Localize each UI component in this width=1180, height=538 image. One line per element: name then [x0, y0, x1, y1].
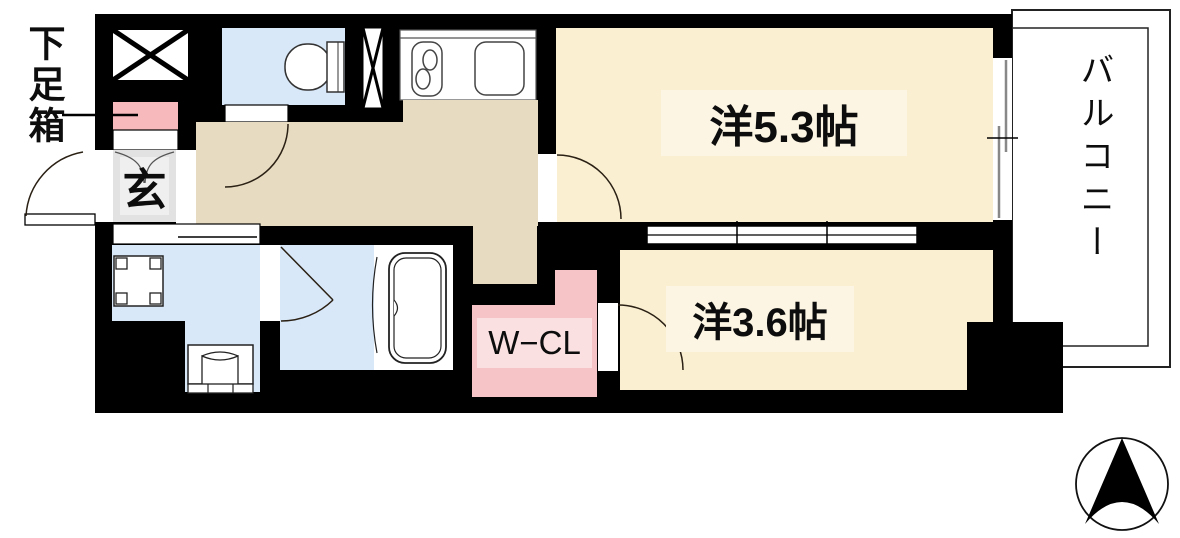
shoe-box-label: 下足箱 [16, 24, 70, 147]
stove-burner-icon [412, 42, 442, 96]
north-compass-icon [1076, 438, 1168, 530]
shoe-box-cabinet [113, 130, 178, 150]
toilet-icon [285, 42, 344, 92]
entrance-opening [176, 150, 196, 228]
floorplan-canvas: 下足箱 玄 洋5.3帖 洋3.6帖 W−CL バルコニー [0, 0, 1180, 538]
kitchen-sink-icon [475, 42, 524, 95]
front-door-gap [95, 150, 113, 222]
room-5-3-door-gap [538, 154, 557, 222]
washbasin-icon [188, 345, 253, 393]
shaft-x-icon [363, 28, 383, 108]
wcl-door-gap [598, 303, 618, 371]
shaft-x-box-icon [113, 30, 188, 80]
front-door-leaf [25, 214, 95, 225]
room-5-3-label: 洋5.3帖 [661, 90, 907, 156]
bathroom-door-gap [260, 245, 280, 321]
room-3-6-label: 洋3.6帖 [666, 286, 854, 352]
toilet-door-leaf [225, 105, 288, 122]
balcony-label: バルコニー [1070, 52, 1119, 267]
walk-in-closet-label: W−CL [477, 318, 592, 368]
wall-block [967, 322, 1063, 413]
sliding-door [113, 224, 260, 244]
entrance-label: 玄 [113, 150, 176, 222]
washing-machine-pan-icon [114, 256, 163, 306]
bathroom-floor [280, 245, 374, 370]
floorplan-drawing [0, 0, 1180, 538]
